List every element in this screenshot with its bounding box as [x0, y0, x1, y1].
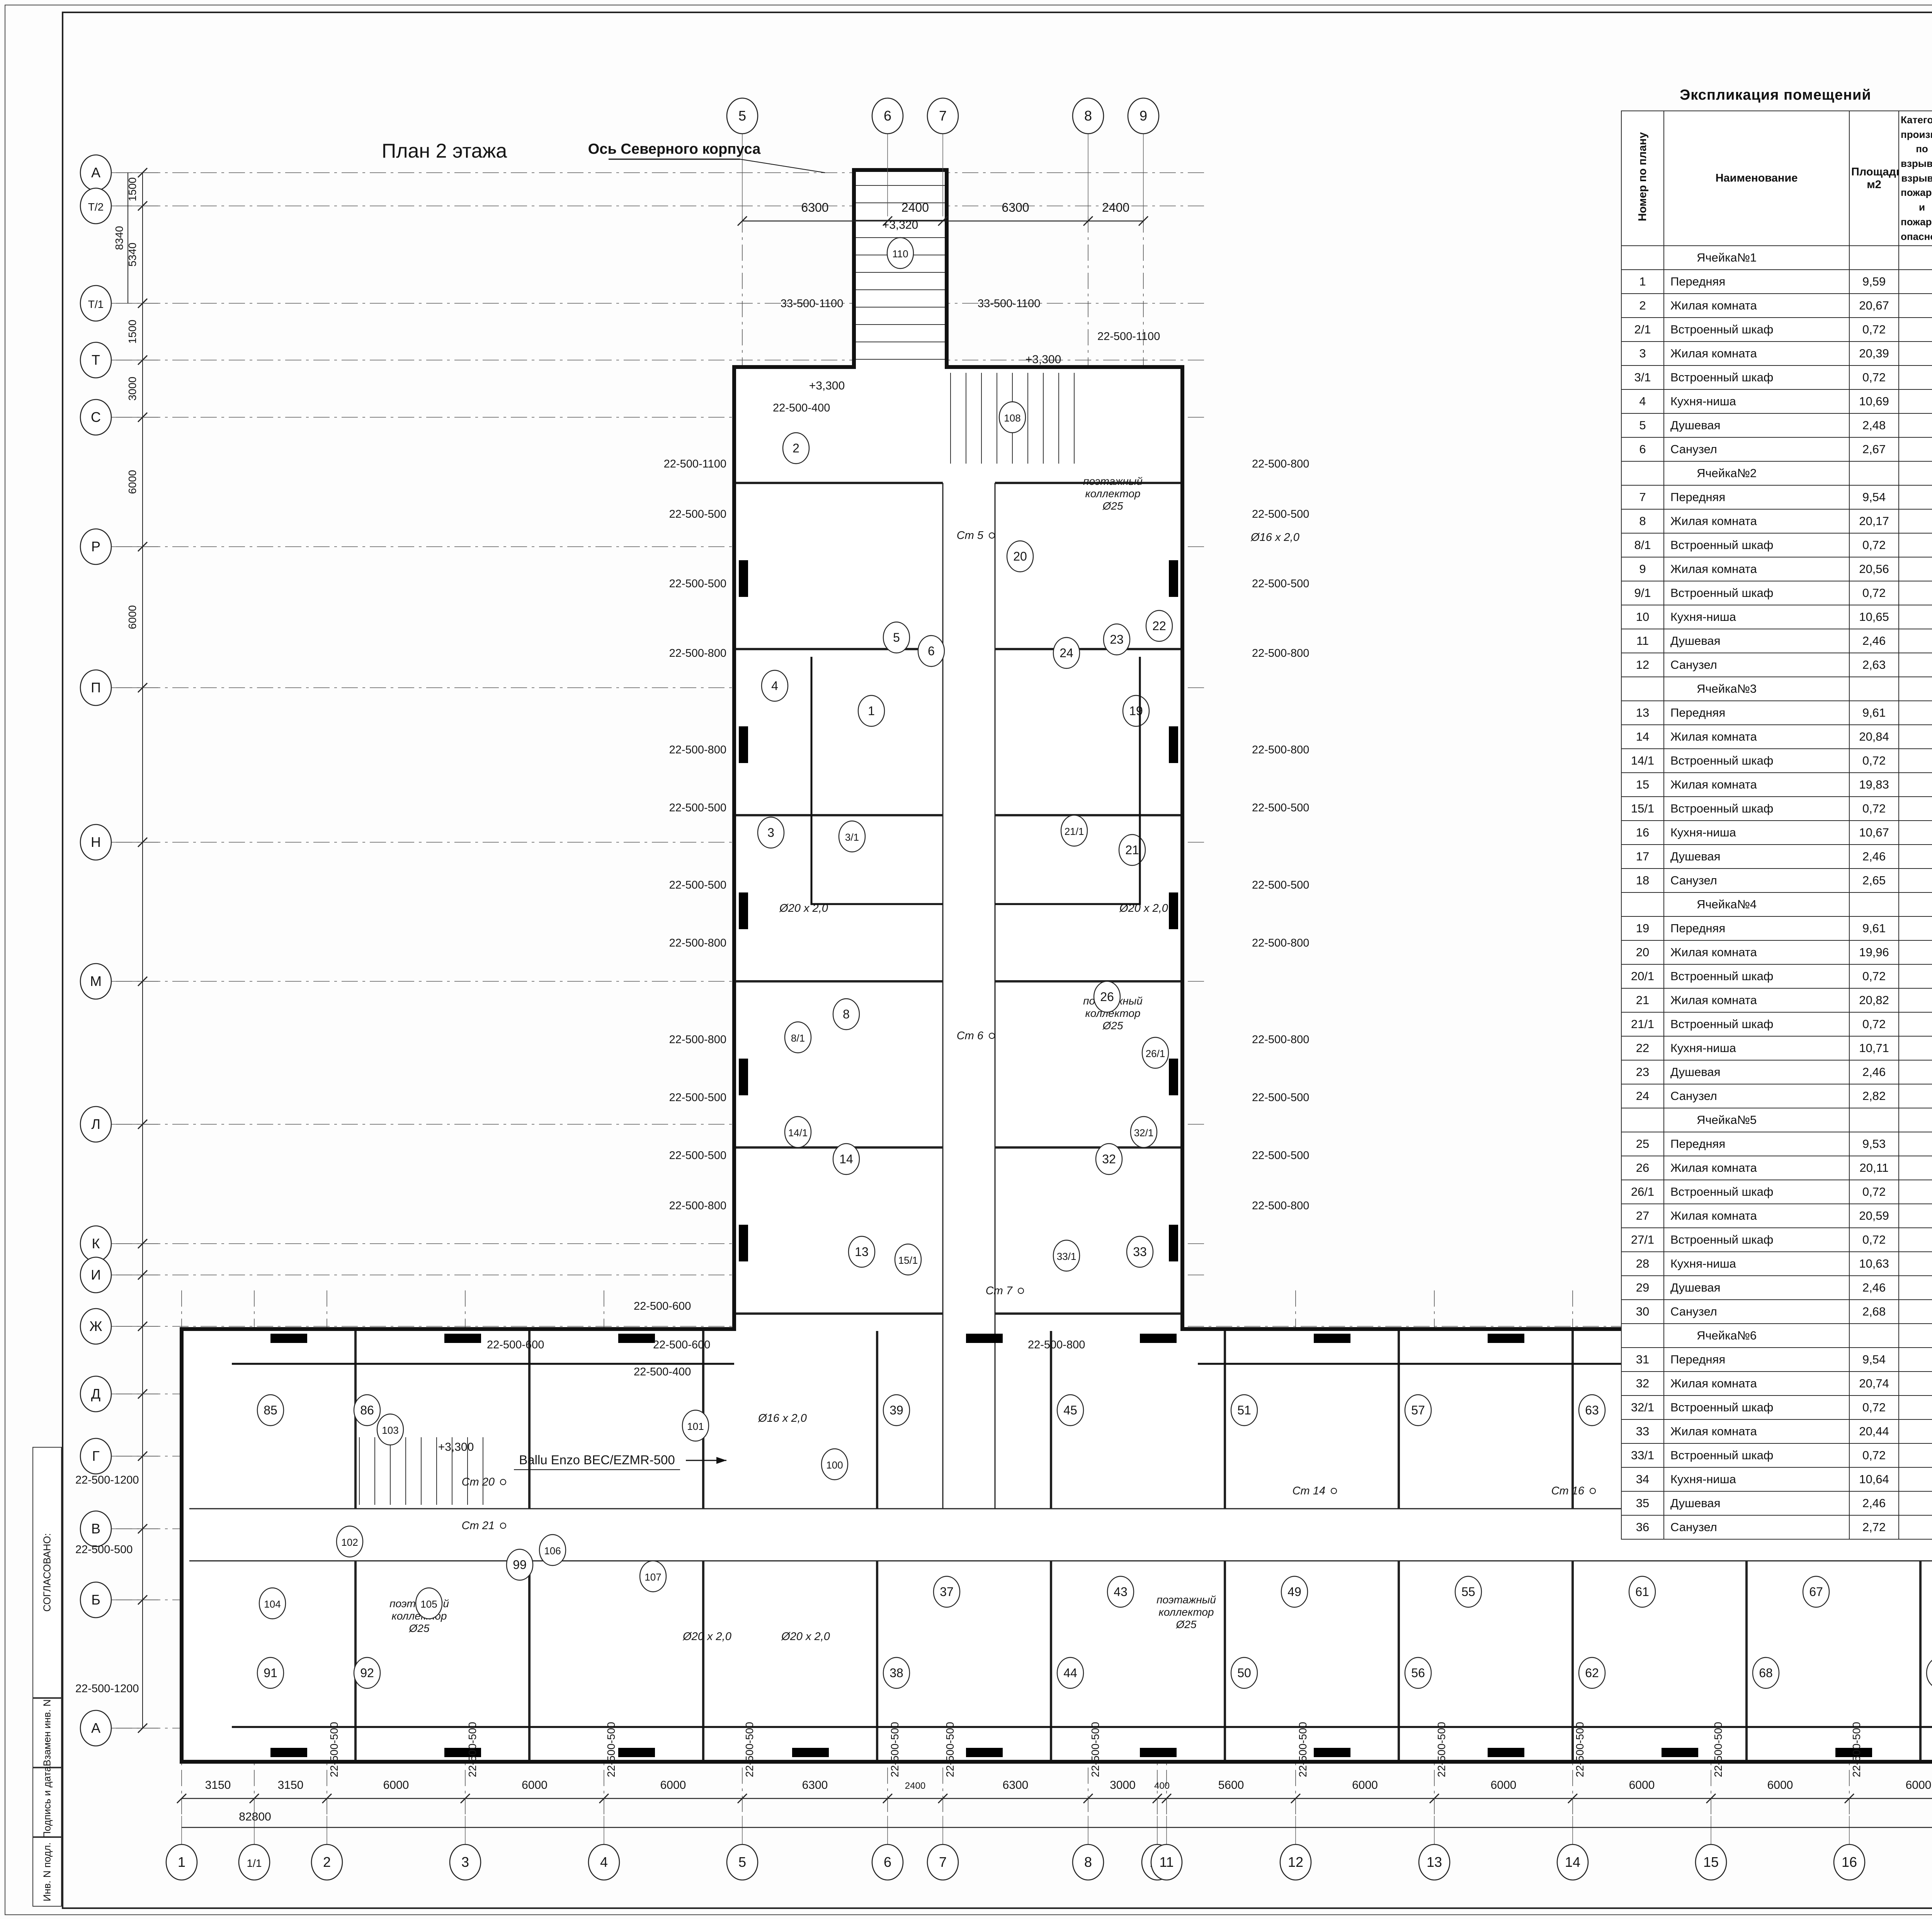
- cell-category: [1899, 437, 1932, 461]
- riser-label: Ст 20: [462, 1476, 495, 1488]
- room-number: 49: [1287, 1585, 1301, 1599]
- table-row: 35Душевая2,46: [1621, 1491, 1932, 1515]
- cell-name: Санузел: [1664, 1084, 1849, 1108]
- room-number: 67: [1809, 1585, 1823, 1599]
- cell-area: 9,61: [1849, 701, 1899, 725]
- cell-category: [1899, 725, 1932, 749]
- table-row: 32/1Встроенный шкаф0,72: [1621, 1395, 1932, 1419]
- cell-category: [1899, 964, 1932, 988]
- north-axis-note: Ось Северного корпуса: [588, 141, 761, 157]
- table-row: 8Жилая комната20,17: [1621, 509, 1932, 533]
- table-row: 32Жилая комната20,74: [1621, 1372, 1932, 1395]
- axis-bubble-left-label: Т/1: [88, 298, 104, 310]
- riser-tag-rotated: 22-500-500: [1089, 1722, 1101, 1777]
- riser-tag-rotated: 22-500-500: [1435, 1722, 1447, 1777]
- radiator: [792, 1748, 829, 1757]
- collector-label: Ø25: [1102, 500, 1123, 512]
- dim-label: 6000: [660, 1779, 686, 1792]
- cell-name: Передняя: [1664, 1132, 1849, 1156]
- agreed-stamp: СОГЛАСОВАНО:: [32, 1447, 62, 1698]
- table-row: 23Душевая2,46: [1621, 1060, 1932, 1084]
- riser-tag: 22-500-800: [1252, 744, 1309, 756]
- table-row: Ячейка№5: [1621, 1108, 1932, 1132]
- cell-area: 20,44: [1849, 1419, 1899, 1443]
- cell-area: 2,48: [1849, 413, 1899, 437]
- cell-number: 2: [1621, 294, 1664, 318]
- riser-tag: 22-500-800: [669, 1033, 726, 1046]
- axis-bubble-left-label: Р: [91, 539, 100, 554]
- dim-label: 1500: [126, 320, 138, 343]
- elevation-mark: +3,320: [883, 219, 918, 231]
- table-row: 29Душевая2,46: [1621, 1276, 1932, 1300]
- cell-name: Душевая: [1664, 1276, 1849, 1300]
- axis-bubble-left-label: В: [91, 1521, 100, 1537]
- radiator: [270, 1334, 307, 1343]
- cell-number: 15: [1621, 773, 1664, 797]
- room-number: 68: [1759, 1666, 1773, 1680]
- inv-num-stamp: Инв. N подл.: [32, 1837, 62, 1907]
- dim-label: 6000: [522, 1779, 548, 1792]
- radiator: [1488, 1334, 1524, 1343]
- cell-name: Санузел: [1664, 1515, 1849, 1539]
- inv-num-label: Инв. N подл.: [41, 1843, 53, 1902]
- cell-category: [1899, 1515, 1932, 1539]
- cell-area: 10,64: [1849, 1467, 1899, 1491]
- room-number: 32/1: [1134, 1127, 1154, 1139]
- cell-category: [1899, 533, 1932, 557]
- cell-name: Санузел: [1664, 437, 1849, 461]
- cell-name: Встроенный шкаф: [1664, 365, 1849, 389]
- axis-bubble-left-label: Д: [91, 1386, 100, 1402]
- cell-section: Ячейка№4: [1664, 892, 1849, 916]
- riser-tag-rotated: 22-500-500: [944, 1722, 956, 1777]
- cell-number: 20: [1621, 940, 1664, 964]
- room-number: 101: [687, 1421, 704, 1432]
- cell-area: 10,65: [1849, 605, 1899, 629]
- cell-area: 20,67: [1849, 294, 1899, 318]
- riser-point: [1590, 1488, 1595, 1494]
- dim-label: 3150: [205, 1779, 231, 1792]
- cell-number: 28: [1621, 1252, 1664, 1276]
- cell-area: 19,96: [1849, 940, 1899, 964]
- table-row: 15Жилая комната19,83: [1621, 773, 1932, 797]
- room-number: 21/1: [1065, 826, 1084, 837]
- riser-tag: 22-500-400: [773, 402, 830, 414]
- cell-number: 17: [1621, 845, 1664, 869]
- cell-area: 2,46: [1849, 629, 1899, 653]
- collector-label: коллектор: [1158, 1606, 1214, 1618]
- cell-area: 10,67: [1849, 821, 1899, 845]
- table-row: 14/1Встроенный шкаф0,72: [1621, 749, 1932, 773]
- cell-name: Жилая комната: [1664, 342, 1849, 365]
- room-number: 56: [1411, 1666, 1425, 1680]
- cell-number: 29: [1621, 1276, 1664, 1300]
- cell-number: 30: [1621, 1300, 1664, 1324]
- cell-name: Санузел: [1664, 1300, 1849, 1324]
- radiator: [444, 1334, 481, 1343]
- cell-number: 2/1: [1621, 318, 1664, 342]
- table-row: 1Передняя9,59: [1621, 270, 1932, 294]
- riser-tag: 33-500-1100: [978, 297, 1040, 310]
- cell-number: 13: [1621, 701, 1664, 725]
- cell-name: Санузел: [1664, 869, 1849, 892]
- room-number: 33: [1133, 1245, 1147, 1259]
- cell-area: 0,72: [1849, 1180, 1899, 1204]
- axis-bubble-top-label: 9: [1139, 108, 1147, 124]
- dim-label: 6000: [1352, 1779, 1378, 1792]
- axis-bubble-bottom-label: 15: [1703, 1854, 1719, 1870]
- dim-label: 6300: [802, 1779, 828, 1792]
- room-number: 39: [889, 1403, 903, 1417]
- room-number: 106: [544, 1545, 561, 1557]
- cell-category: [1899, 1084, 1932, 1108]
- cell-area: 10,63: [1849, 1252, 1899, 1276]
- table-row: 19Передняя9,61: [1621, 916, 1932, 940]
- cell-section: Ячейка№3: [1664, 677, 1849, 701]
- riser-label: Ст 6: [957, 1030, 984, 1042]
- table-row: 27Жилая комната20,59: [1621, 1204, 1932, 1228]
- cell-name: Душевая: [1664, 845, 1849, 869]
- riser-point: [989, 1033, 995, 1039]
- table-row: 6Санузел2,67: [1621, 437, 1932, 461]
- cell-category: [1899, 1491, 1932, 1515]
- cell-area: 9,54: [1849, 485, 1899, 509]
- axis-bubble-top-label: 6: [884, 108, 891, 124]
- collector-label: Ø25: [1176, 1618, 1197, 1630]
- cell-number: 5: [1621, 413, 1664, 437]
- radiator: [739, 892, 748, 929]
- radiator: [1169, 1225, 1178, 1261]
- room-number: 62: [1585, 1666, 1599, 1680]
- table-row: 15/1Встроенный шкаф0,72: [1621, 797, 1932, 821]
- riser-tag-rotated: 22-500-500: [466, 1722, 478, 1777]
- collector-label: поэтажный: [1156, 1594, 1216, 1606]
- cell-name: Жилая комната: [1664, 509, 1849, 533]
- drawing-sheet: 56789630024006300240011/1234567810111213…: [0, 0, 1932, 1919]
- radiator: [1169, 560, 1178, 597]
- table-row: 25Передняя9,53: [1621, 1132, 1932, 1156]
- axis-bubble-bottom-label: 13: [1427, 1854, 1442, 1870]
- collector-label: Ø25: [409, 1622, 430, 1634]
- cell-number: 32: [1621, 1372, 1664, 1395]
- riser-tag: 22-500-800: [669, 647, 726, 659]
- dim-label: 2400: [901, 201, 929, 214]
- table-row: 3Жилая комната20,39: [1621, 342, 1932, 365]
- cell-section: Ячейка№1: [1664, 246, 1849, 270]
- cell-category: [1899, 342, 1932, 365]
- explication-table-1: Экспликация помещенийНомер по плануНаиме…: [1621, 87, 1930, 1540]
- table-row: 20/1Встроенный шкаф0,72: [1621, 964, 1932, 988]
- table-row: 26Жилая комната20,11: [1621, 1156, 1932, 1180]
- room-number: 6: [928, 644, 935, 658]
- table-row: 20Жилая комната19,96: [1621, 940, 1932, 964]
- cell-number: 34: [1621, 1467, 1664, 1491]
- plan-title: План 2 этажа: [382, 140, 507, 162]
- elevation-mark: +3,300: [809, 379, 845, 392]
- axis-bubble-bottom-label: 3: [461, 1854, 469, 1870]
- dim-label: 6000: [383, 1779, 409, 1792]
- axis-bubble-left-label: А: [91, 165, 100, 180]
- riser-tag: 22-500-500: [669, 508, 726, 520]
- dim-label: 6000: [1767, 1779, 1793, 1792]
- cell-number: 14/1: [1621, 749, 1664, 773]
- cell-name: Встроенный шкаф: [1664, 1443, 1849, 1467]
- cell-name: Жилая комната: [1664, 988, 1849, 1012]
- cell-name: Встроенный шкаф: [1664, 797, 1849, 821]
- cell-number: 14: [1621, 725, 1664, 749]
- riser-tag: 22-500-500: [1252, 578, 1309, 590]
- room-number: 13: [855, 1245, 869, 1259]
- room-number: 33/1: [1057, 1251, 1077, 1262]
- cell-category: [1899, 797, 1932, 821]
- cell-category: [1899, 1204, 1932, 1228]
- cell-category: [1899, 413, 1932, 437]
- cell-name: Встроенный шкаф: [1664, 1228, 1849, 1252]
- room-number: 44: [1063, 1666, 1077, 1680]
- room-number: 21: [1125, 843, 1139, 857]
- axis-bubble-left-label: Ж: [89, 1318, 102, 1334]
- cell-name: Кухня-ниша: [1664, 389, 1849, 413]
- room-number: 4: [771, 679, 778, 693]
- dim-label: 6000: [1629, 1779, 1655, 1792]
- table-row: 34Кухня-ниша10,64: [1621, 1467, 1932, 1491]
- dim-label: 8340: [113, 226, 125, 250]
- cell-number: 9: [1621, 557, 1664, 581]
- cell-category: [1899, 1228, 1932, 1252]
- cell-number: 26: [1621, 1156, 1664, 1180]
- dim-label: 2400: [905, 1781, 925, 1791]
- radiator: [1169, 892, 1178, 929]
- col-header-num: Номер по плану: [1621, 111, 1664, 246]
- cell-number: 36: [1621, 1515, 1664, 1539]
- table-row: 8/1Встроенный шкаф0,72: [1621, 533, 1932, 557]
- room-number: 8: [843, 1007, 850, 1021]
- axis-bubble-left-label: Л: [91, 1116, 100, 1132]
- replace-inv-label: Взамен инв. N: [41, 1699, 53, 1766]
- radiator: [1169, 1059, 1178, 1095]
- cell-number: 8: [1621, 509, 1664, 533]
- cell-number: 16: [1621, 821, 1664, 845]
- table-row: 10Кухня-ниша10,65: [1621, 605, 1932, 629]
- table-row: 21Жилая комната20,82: [1621, 988, 1932, 1012]
- cell-category: [1899, 1156, 1932, 1180]
- cell-category: [1899, 1012, 1932, 1036]
- cell-category: [1899, 940, 1932, 964]
- riser-point: [989, 533, 995, 538]
- cell-number: 12: [1621, 653, 1664, 677]
- cell-area: 0,72: [1849, 581, 1899, 605]
- cell-area: 0,72: [1849, 1228, 1899, 1252]
- table-row: 16Кухня-ниша10,67: [1621, 821, 1932, 845]
- axis-bubble-bottom-label: 6: [884, 1854, 891, 1870]
- axis-bubble-left-label: Н: [91, 834, 101, 850]
- room-number: 103: [382, 1424, 398, 1436]
- table-row: 3/1Встроенный шкаф0,72: [1621, 365, 1932, 389]
- agreed-label: СОГЛАСОВАНО:: [41, 1533, 53, 1611]
- room-number: 1: [868, 704, 875, 718]
- riser-point: [500, 1523, 506, 1528]
- cell-category: [1899, 365, 1932, 389]
- dim-label: 6000: [1491, 1779, 1517, 1792]
- cell-category: [1899, 1443, 1932, 1467]
- room-number: 15/1: [898, 1254, 918, 1266]
- cell-name: Душевая: [1664, 1060, 1849, 1084]
- riser-point: [1331, 1488, 1337, 1494]
- riser-tag: 22-500-500: [1252, 508, 1309, 520]
- table-row: 28Кухня-ниша10,63: [1621, 1252, 1932, 1276]
- room-number: 14/1: [788, 1127, 808, 1139]
- cell-number: 3/1: [1621, 365, 1664, 389]
- collector-label: поэтажный: [1083, 475, 1143, 487]
- cell-number: 10: [1621, 605, 1664, 629]
- table-row: 27/1Встроенный шкаф0,72: [1621, 1228, 1932, 1252]
- room-number: 5: [893, 631, 900, 644]
- cell-category: [1899, 1419, 1932, 1443]
- cell-name: Встроенный шкаф: [1664, 1012, 1849, 1036]
- radiator: [739, 1059, 748, 1095]
- radiator: [618, 1334, 655, 1343]
- cell-name: Передняя: [1664, 270, 1849, 294]
- cell-number: 32/1: [1621, 1395, 1664, 1419]
- dim-label: 6000: [126, 470, 138, 494]
- cell-area: 20,39: [1849, 342, 1899, 365]
- cell-name: Встроенный шкаф: [1664, 533, 1849, 557]
- cell-name: Передняя: [1664, 701, 1849, 725]
- dim-label: 6000: [126, 605, 138, 629]
- radiator: [1662, 1748, 1698, 1757]
- cell-number: 6: [1621, 437, 1664, 461]
- room-number: 8/1: [791, 1032, 805, 1044]
- cell-area: 9,53: [1849, 1132, 1899, 1156]
- table-row: Ячейка№4: [1621, 892, 1932, 916]
- dim-label: 6300: [801, 201, 828, 214]
- cell-area: 20,11: [1849, 1156, 1899, 1180]
- table-row: Ячейка№2: [1621, 461, 1932, 485]
- riser-label: Ст 7: [986, 1285, 1013, 1297]
- riser-tag: 22-500-1200: [75, 1683, 139, 1695]
- table-row: 9/1Встроенный шкаф0,72: [1621, 581, 1932, 605]
- axis-bubble-top-label: 5: [738, 108, 746, 124]
- cell-area: 2,63: [1849, 653, 1899, 677]
- radiator: [1314, 1748, 1350, 1757]
- col-header-area: Площадь, м2: [1849, 111, 1899, 246]
- dim-label: 400: [1154, 1781, 1170, 1791]
- radiator: [739, 560, 748, 597]
- cell-name: Жилая комната: [1664, 1372, 1849, 1395]
- riser-tag: 22-500-600: [634, 1300, 691, 1312]
- room-number: 92: [360, 1666, 374, 1680]
- axis-bubble-left-label: П: [91, 680, 101, 695]
- axis-bubble-left-label: К: [92, 1236, 100, 1251]
- cell-category: [1899, 485, 1932, 509]
- cell-name: Душевая: [1664, 413, 1849, 437]
- table-row: 13Передняя9,61: [1621, 701, 1932, 725]
- riser-tag-rotated: 22-500-500: [605, 1722, 617, 1777]
- cell-name: Жилая комната: [1664, 294, 1849, 318]
- cell-category: [1899, 1276, 1932, 1300]
- riser-tag-rotated: 22-500-500: [1574, 1722, 1586, 1777]
- cell-name: Кухня-ниша: [1664, 1467, 1849, 1491]
- table-row: 17Душевая2,46: [1621, 845, 1932, 869]
- room-number: 110: [892, 248, 908, 260]
- cell-number: 31: [1621, 1348, 1664, 1372]
- table-row: 12Санузел2,63: [1621, 653, 1932, 677]
- axis-bubble-bottom-label: 4: [600, 1854, 608, 1870]
- replace-inv-stamp: Взамен инв. N: [32, 1698, 62, 1768]
- dim-label: 3000: [1110, 1779, 1136, 1792]
- axis-bubble-bottom-label: 16: [1842, 1854, 1857, 1870]
- cell-number: 27/1: [1621, 1228, 1664, 1252]
- cell-number: 35: [1621, 1491, 1664, 1515]
- cell-name: Душевая: [1664, 1491, 1849, 1515]
- cell-category: [1899, 629, 1932, 653]
- cell-name: Жилая комната: [1664, 557, 1849, 581]
- cell-number: 4: [1621, 389, 1664, 413]
- dim-label: 5600: [1218, 1779, 1244, 1792]
- explication-table: Номер по плануНаименованиеПлощадь, м2Кат…: [1621, 110, 1932, 1540]
- cell-name: Встроенный шкаф: [1664, 1180, 1849, 1204]
- dim-label: 3150: [278, 1779, 304, 1792]
- room-number: 50: [1237, 1666, 1251, 1680]
- dim-label: 6300: [1003, 1779, 1029, 1792]
- riser-tag-rotated: 22-500-500: [889, 1722, 901, 1777]
- table-row: 11Душевая2,46: [1621, 629, 1932, 653]
- cell-number: 26/1: [1621, 1180, 1664, 1204]
- cell-name: Жилая комната: [1664, 940, 1849, 964]
- cell-area: 9,61: [1849, 916, 1899, 940]
- cell-name: Передняя: [1664, 916, 1849, 940]
- pipe-size-label: Ø16 x 2,0: [758, 1412, 807, 1424]
- elevation-mark: +3,300: [1026, 353, 1061, 366]
- cell-number: 33/1: [1621, 1443, 1664, 1467]
- dim-total-label: 82800: [239, 1810, 271, 1823]
- cell-category: [1899, 557, 1932, 581]
- riser-tag: 22-500-800: [1252, 1033, 1309, 1046]
- table-row: 31Передняя9,54: [1621, 1348, 1932, 1372]
- room-number: 63: [1585, 1403, 1599, 1417]
- dim-label: 6000: [1906, 1779, 1932, 1792]
- room-number: 91: [264, 1666, 277, 1680]
- riser-tag: 22-500-500: [1252, 1149, 1309, 1162]
- table-row: 26/1Встроенный шкаф0,72: [1621, 1180, 1932, 1204]
- cell-name: Встроенный шкаф: [1664, 749, 1849, 773]
- cell-category: [1899, 1300, 1932, 1324]
- cell-number: 9/1: [1621, 581, 1664, 605]
- cell-area: 20,17: [1849, 509, 1899, 533]
- cell-name: Жилая комната: [1664, 1419, 1849, 1443]
- table-row: 9Жилая комната20,56: [1621, 557, 1932, 581]
- riser-tag: 22-500-1200: [75, 1474, 139, 1486]
- radiator: [270, 1748, 307, 1757]
- cell-category: [1899, 1395, 1932, 1419]
- room-number: 24: [1060, 646, 1073, 660]
- riser-tag: 22-500-800: [669, 1200, 726, 1212]
- riser-tag: 22-500-800: [1028, 1339, 1085, 1351]
- pipe-size-label: Ø20 x 2,0: [682, 1630, 731, 1643]
- axis-bubble-left-label: Б: [91, 1592, 100, 1608]
- cell-category: [1899, 605, 1932, 629]
- riser-tag: 22-500-600: [653, 1339, 710, 1351]
- cell-section: Ячейка№5: [1664, 1108, 1849, 1132]
- pipe-size-label: Ø20 x 2,0: [781, 1630, 830, 1643]
- cell-category: [1899, 389, 1932, 413]
- cell-name: Передняя: [1664, 1348, 1849, 1372]
- riser-tag: 22-500-500: [669, 879, 726, 891]
- table-row: 4Кухня-ниша10,69: [1621, 389, 1932, 413]
- table-row: Ячейка№3: [1621, 677, 1932, 701]
- table-row: 14Жилая комната20,84: [1621, 725, 1932, 749]
- cell-number: 23: [1621, 1060, 1664, 1084]
